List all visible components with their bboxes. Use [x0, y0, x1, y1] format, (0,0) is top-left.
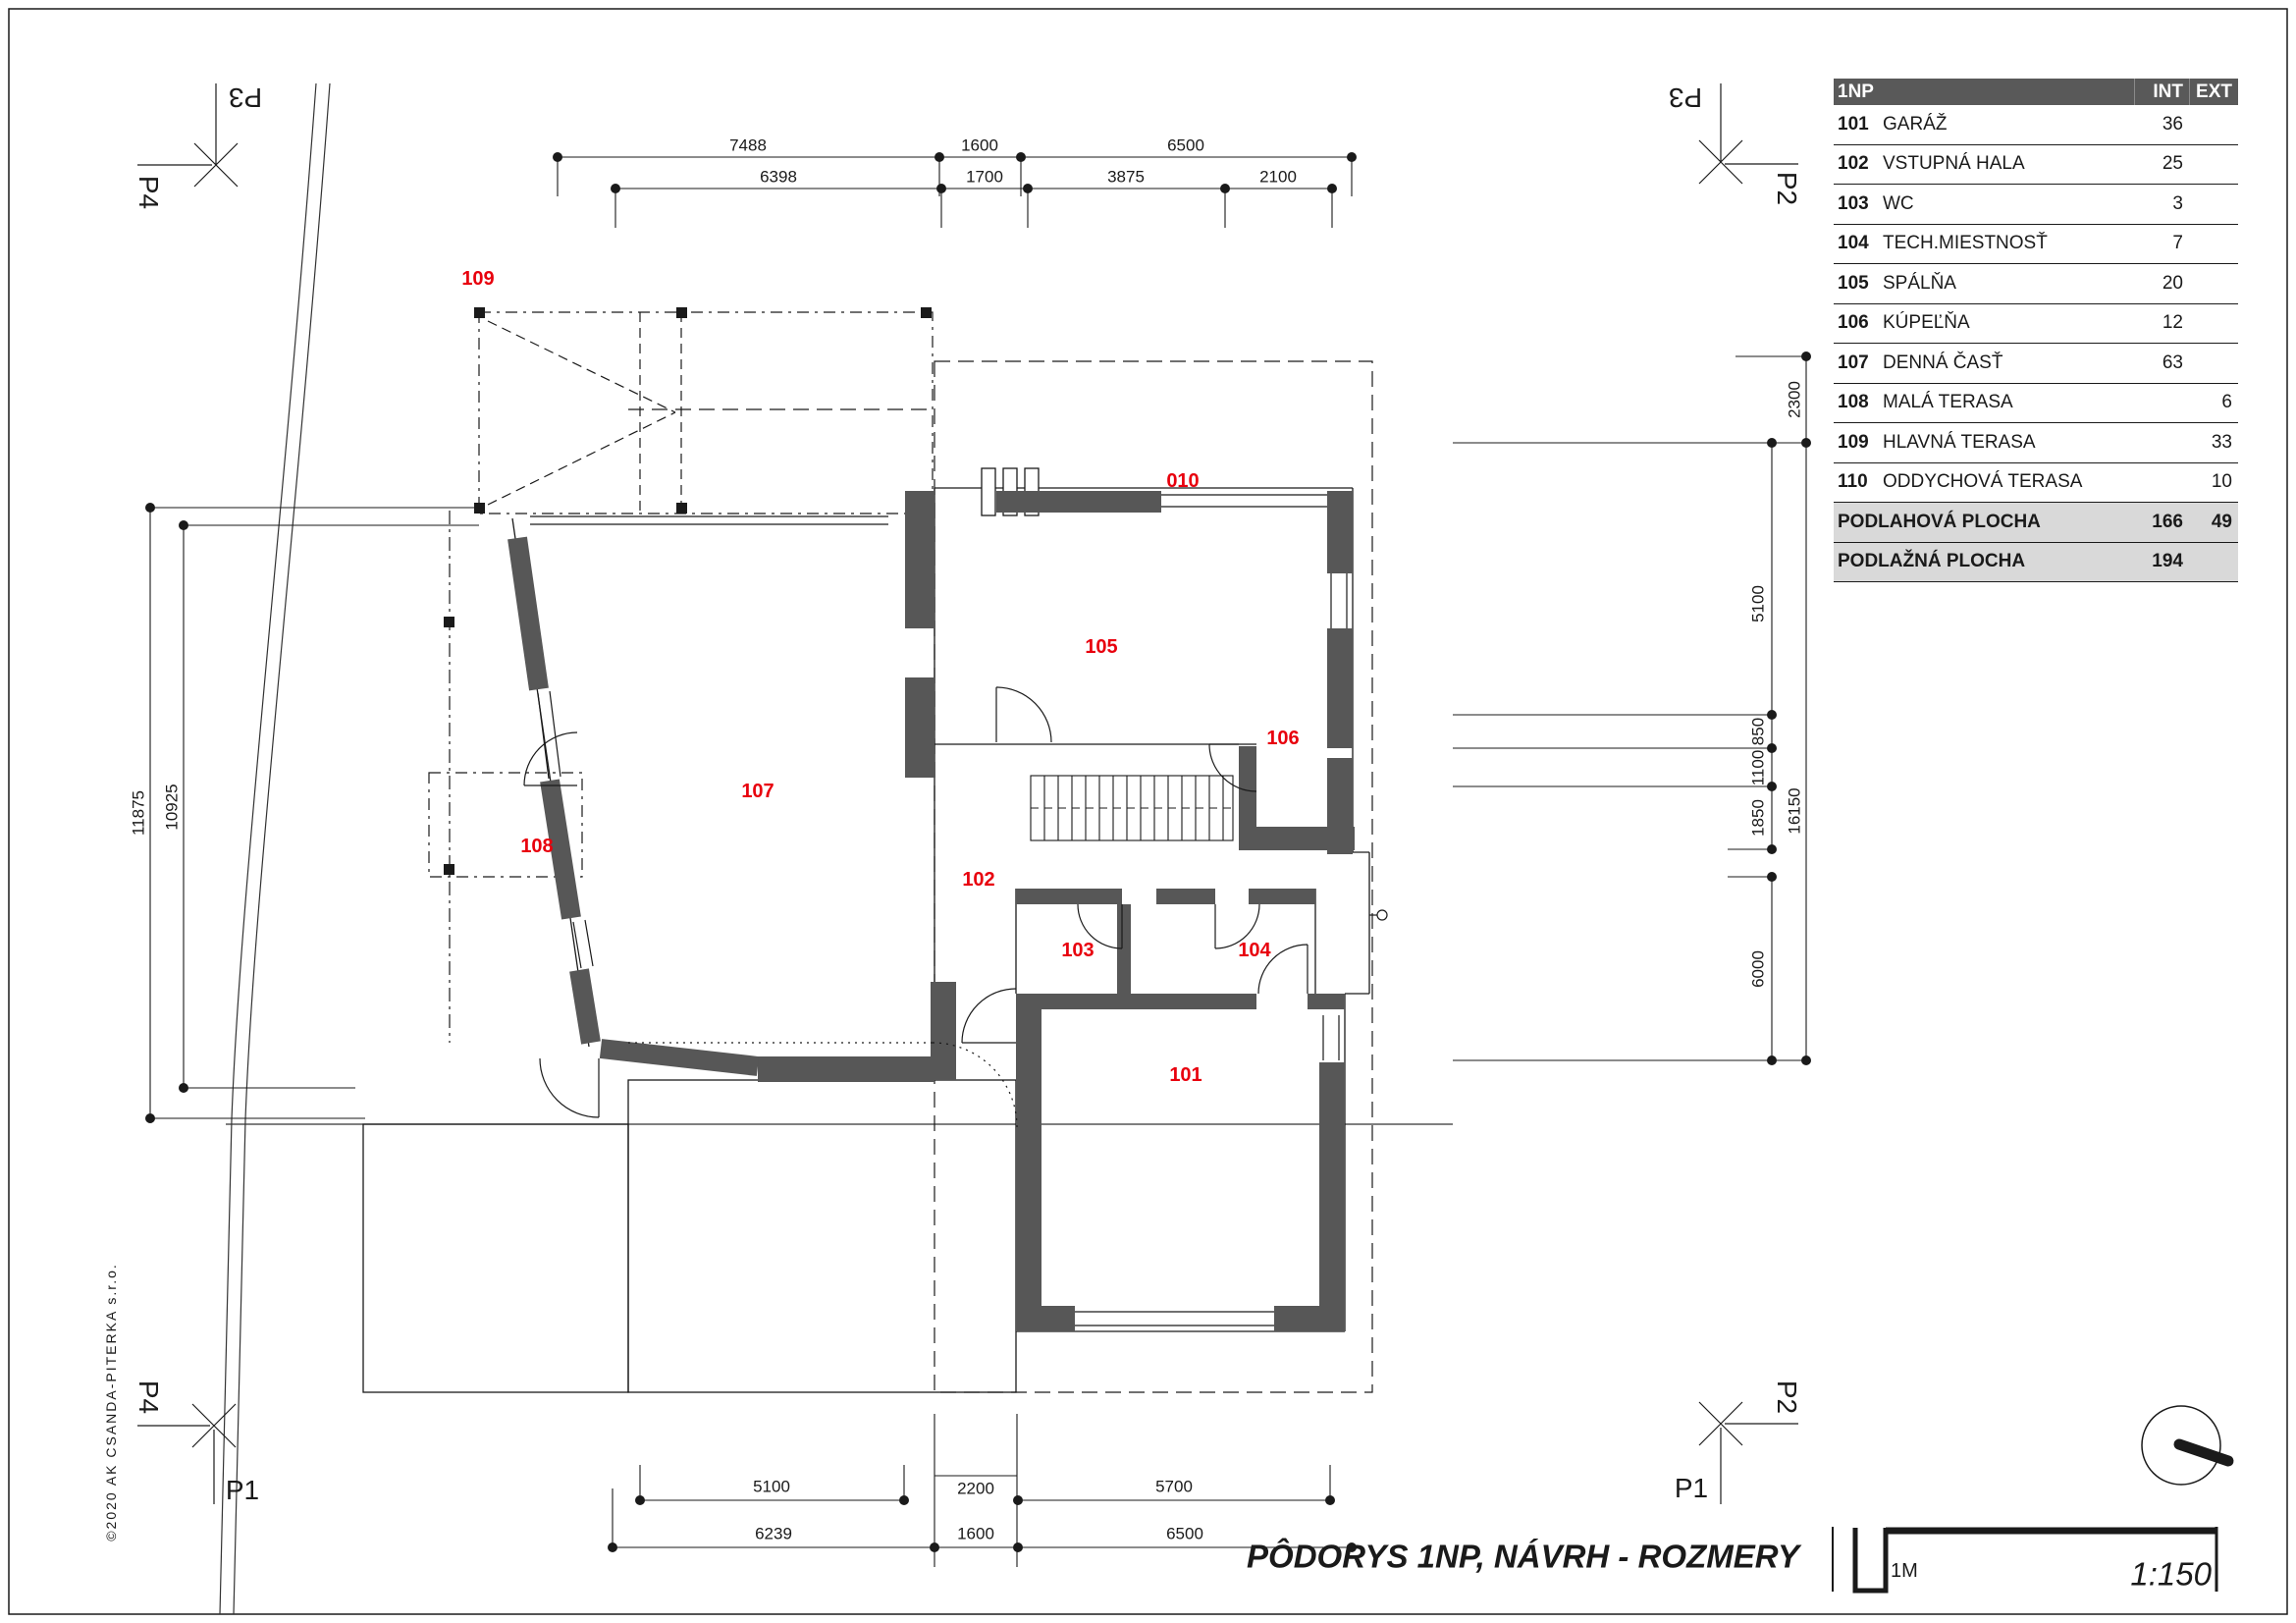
dim-top-6500: 6500: [1167, 137, 1204, 154]
section-label-p1-bottom-right: P1: [1675, 1475, 1708, 1502]
stairs: [1031, 776, 1233, 840]
dim-top-7488: 7488: [729, 137, 767, 154]
room-legend-table: 1NP INT EXT 101 GARÁŽ 36 102 VSTUPNÁ HAL…: [1834, 79, 2238, 582]
legend-row-106: 106 KÚPEĽŇA 12: [1834, 304, 2238, 345]
legend-summary-floor-area: PODLAHOVÁ PLOCHA 166 49: [1834, 503, 2238, 543]
legend-room-number: 108: [1834, 392, 1883, 413]
legend-room-ext-area: 6: [2189, 392, 2238, 413]
room-label-104: 104: [1238, 941, 1270, 960]
legend-room-name: TECH.MIESTNOSŤ: [1883, 233, 2134, 254]
legend-room-int-area: 63: [2134, 352, 2189, 374]
legend-room-int-area: 36: [2134, 114, 2189, 135]
dim-top-6398: 6398: [760, 169, 797, 186]
section-label-p2-bottom-right: P2: [1773, 1380, 1800, 1414]
legend-header-level: 1NP: [1834, 81, 1883, 103]
room-label-107: 107: [741, 782, 774, 801]
legend-room-int-area: 3: [2134, 193, 2189, 215]
legend-room-ext-area: 10: [2189, 471, 2238, 493]
legend-room-number: 109: [1834, 432, 1883, 454]
legend-summary-ext: 49: [2189, 512, 2238, 533]
legend-summary-int: 194: [2134, 551, 2189, 572]
dim-right-5100: 5100: [1750, 585, 1767, 622]
legend-room-number: 101: [1834, 114, 1883, 135]
dim-top-3875: 3875: [1107, 169, 1145, 186]
walls: [517, 491, 1355, 1331]
legend-room-int-area: 12: [2134, 312, 2189, 334]
legend-row-110: 110 ODDYCHOVÁ TERASA 10: [1834, 463, 2238, 504]
legend-header-row: 1NP INT EXT: [1834, 79, 2238, 105]
legend-room-number: 103: [1834, 193, 1883, 215]
dim-top-1600: 1600: [961, 137, 998, 154]
room-label-102: 102: [962, 870, 994, 890]
legend-room-number: 102: [1834, 153, 1883, 175]
dim-bottom-2200: 2200: [957, 1481, 994, 1497]
slanted-wall-segments: [517, 538, 758, 1066]
dim-bottom-5100: 5100: [753, 1479, 790, 1495]
legend-row-108: 108 MALÁ TERASA 6: [1834, 384, 2238, 424]
legend-room-number: 105: [1834, 273, 1883, 295]
dimension-dots: [145, 152, 1811, 1552]
room-label-103: 103: [1061, 941, 1094, 960]
dim-left-10925: 10925: [164, 784, 181, 830]
section-label-p4-bottom-left: P4: [134, 1380, 162, 1414]
dim-right-1850: 1850: [1750, 799, 1767, 837]
dim-left-11875: 11875: [131, 790, 147, 836]
legend-room-name: VSTUPNÁ HALA: [1883, 153, 2134, 175]
room-label-106: 106: [1266, 729, 1299, 748]
legend-room-number: 107: [1834, 352, 1883, 374]
dim-bottom-6500: 6500: [1166, 1526, 1203, 1542]
room-label-109: 109: [461, 269, 494, 289]
legend-room-name: HLAVNÁ TERASA: [1883, 432, 2134, 454]
legend-room-ext-area: 33: [2189, 432, 2238, 454]
legend-summary-gross-area: PODLAŽNÁ PLOCHA 194: [1834, 543, 2238, 583]
dim-right-6000: 6000: [1750, 950, 1767, 988]
room-label-101: 101: [1169, 1065, 1201, 1085]
scale-ratio-label: 1:150: [2130, 1558, 2212, 1591]
room-label-010: 010: [1166, 471, 1199, 491]
dim-right-850: 850: [1750, 718, 1767, 745]
dim-bottom-5700: 5700: [1155, 1479, 1193, 1495]
section-label-p4-top-left: P4: [134, 176, 162, 209]
legend-room-name: KÚPEĽŇA: [1883, 312, 2134, 334]
dim-right-2300: 2300: [1787, 381, 1803, 418]
dim-bottom-6239: 6239: [755, 1526, 792, 1542]
legend-room-name: ODDYCHOVÁ TERASA: [1883, 471, 2134, 493]
legend-summary-name: PODLAHOVÁ PLOCHA: [1834, 512, 2134, 533]
legend-row-105: 105 SPÁLŇA 20: [1834, 264, 2238, 304]
copyright-note: ©2020 AK CSANDA-PITERKA s.r.o.: [104, 1263, 118, 1542]
north-indicator: [2142, 1406, 2228, 1485]
legend-summary-int: 166: [2134, 512, 2189, 533]
legend-room-name: SPÁLŇA: [1883, 273, 2134, 295]
legend-row-109: 109 HLAVNÁ TERASA 33: [1834, 423, 2238, 463]
section-label-p3-top-right: P3: [1669, 83, 1702, 111]
legend-room-name: MALÁ TERASA: [1883, 392, 2134, 413]
legend-row-104: 104 TECH.MIESTNOSŤ 7: [1834, 225, 2238, 265]
legend-row-103: 103 WC 3: [1834, 185, 2238, 225]
section-label-p2-top-right: P2: [1773, 172, 1800, 205]
floor-plan-sheet: 109 010 105 106 107 108 102 103 104 101 …: [0, 0, 2296, 1623]
legend-header-ext: EXT: [2189, 79, 2238, 105]
dim-bottom-1600: 1600: [957, 1526, 994, 1542]
legend-header-int: INT: [2134, 79, 2189, 105]
section-label-p1-bottom-left: P1: [226, 1477, 259, 1504]
thin-outlines: [363, 468, 1369, 1392]
legend-room-name: GARÁŽ: [1883, 114, 2134, 135]
room-label-105: 105: [1085, 637, 1117, 657]
legend-row-107: 107 DENNÁ ČASŤ 63: [1834, 344, 2238, 384]
legend-summary-name: PODLAŽNÁ PLOCHA: [1834, 551, 2134, 572]
section-markers: [137, 83, 1798, 1504]
legend-room-int-area: 25: [2134, 153, 2189, 175]
legend-room-number: 110: [1834, 471, 1883, 493]
dim-top-1700: 1700: [966, 169, 1003, 186]
dim-top-2100: 2100: [1259, 169, 1297, 186]
room-label-108: 108: [520, 837, 553, 856]
drawing-title: PÔDORYS 1NP, NÁVRH - ROZMERY: [1247, 1541, 1799, 1573]
dimension-lines: [145, 152, 1811, 1567]
legend-room-name: DENNÁ ČASŤ: [1883, 352, 2134, 374]
dim-right-16150: 16150: [1787, 787, 1803, 834]
legend-room-name: WC: [1883, 193, 2134, 215]
scale-bar-unit-label: 1M: [1891, 1561, 1918, 1581]
legend-room-int-area: 7: [2134, 233, 2189, 254]
legend-room-int-area: 20: [2134, 273, 2189, 295]
dim-right-1100: 1100: [1750, 750, 1767, 786]
legend-row-102: 102 VSTUPNÁ HALA 25: [1834, 145, 2238, 186]
legend-room-number: 104: [1834, 233, 1883, 254]
section-label-p3-top-left: P3: [229, 83, 262, 111]
legend-row-101: 101 GARÁŽ 36: [1834, 105, 2238, 145]
legend-room-number: 106: [1834, 312, 1883, 334]
